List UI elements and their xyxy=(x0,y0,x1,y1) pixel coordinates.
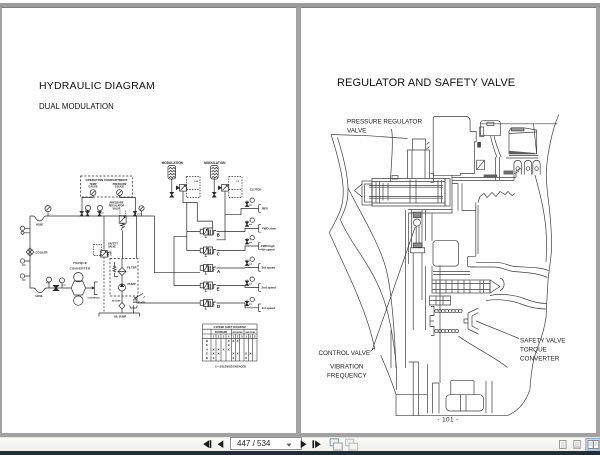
svg-text:C: C xyxy=(217,251,221,256)
svg-text:2: 2 xyxy=(250,335,252,339)
svg-text:X: X xyxy=(245,356,247,360)
svg-text:X: X xyxy=(249,352,251,356)
svg-text:1st speed: 1st speed xyxy=(262,306,276,310)
svg-text:3: 3 xyxy=(254,335,256,339)
svg-text:X: X xyxy=(228,347,230,351)
svg-text:D: D xyxy=(217,304,220,309)
svg-text:HOSE: HOSE xyxy=(36,224,43,227)
svg-text:TORQUE: TORQUE xyxy=(520,347,547,354)
svg-text:2: 2 xyxy=(218,335,220,339)
svg-text:B: B xyxy=(217,232,220,237)
svg-text:CONVERTER: CONVERTER xyxy=(520,356,560,363)
svg-text:FREQUENCY: FREQUENCY xyxy=(327,372,367,379)
svg-text:X: X xyxy=(232,356,234,360)
svg-text:GAUGE: GAUGE xyxy=(115,186,125,189)
svg-text:VALVE: VALVE xyxy=(347,128,366,135)
svg-text:psi: psi xyxy=(138,214,142,216)
svg-text:SAFETY VALVE: SAFETY VALVE xyxy=(520,338,566,345)
svg-text:4th speed: 4th speed xyxy=(261,247,275,251)
svg-text:X: X xyxy=(212,356,214,360)
svg-text:psi: psi xyxy=(249,283,253,285)
svg-text:1: 1 xyxy=(245,335,247,339)
svg-text:X: X xyxy=(237,339,239,343)
svg-text:HOSE: HOSE xyxy=(35,295,42,298)
svg-text:X: X xyxy=(237,352,239,356)
svg-text:L5: L5 xyxy=(237,181,240,183)
svg-text:BREATHER: BREATHER xyxy=(133,301,145,304)
svg-text:TORQUE: TORQUE xyxy=(73,261,87,265)
svg-text:OIL SUMP: OIL SUMP xyxy=(114,316,126,319)
svg-text:CLUTCH: CLUTCH xyxy=(250,188,262,192)
svg-text:3: 3 xyxy=(223,335,225,339)
svg-text:MODULATION: MODULATION xyxy=(204,161,226,165)
svg-text:VALVE: VALVE xyxy=(108,245,116,248)
svg-text:VIBRATION: VIBRATION xyxy=(330,363,364,370)
svg-text:X: X xyxy=(232,339,234,343)
svg-text:X: X xyxy=(217,352,219,356)
svg-text:TW: TW xyxy=(46,283,50,285)
svg-text:FILTER: FILTER xyxy=(127,265,137,269)
svg-text:PUMP: PUMP xyxy=(128,282,136,286)
svg-text:3rd speed: 3rd speed xyxy=(262,266,276,270)
svg-text:2nd speed: 2nd speed xyxy=(262,286,277,290)
svg-text:psi: psi xyxy=(249,263,253,265)
svg-text:X = SOLENOID ENGAGED: X = SOLENOID ENGAGED xyxy=(215,365,246,368)
svg-text:PRESSURE REGULATOR: PRESSURE REGULATOR xyxy=(347,119,422,126)
svg-text:REV: REV xyxy=(262,207,268,211)
svg-text:psi: psi xyxy=(249,204,253,206)
svg-text:MODULATION: MODULATION xyxy=(162,161,184,165)
svg-text:psi: psi xyxy=(249,224,253,226)
svg-text:X: X xyxy=(222,347,224,351)
svg-text:CONVERTER: CONVERTER xyxy=(70,267,91,271)
svg-text:GAUGE: GAUGE xyxy=(88,186,98,189)
svg-text:psi: psi xyxy=(101,213,105,215)
svg-text:psi: psi xyxy=(249,242,253,244)
svg-text:CONVERSION: CONVERSION xyxy=(88,297,101,299)
svg-text:FWD slow: FWD slow xyxy=(262,227,277,231)
svg-text:psi: psi xyxy=(63,285,67,287)
svg-text:FORWARD: FORWARD xyxy=(215,331,228,334)
svg-text:COOLER: COOLER xyxy=(36,250,48,254)
svg-text:A: A xyxy=(217,269,221,274)
svg-text:CONTROL VALVE: CONTROL VALVE xyxy=(319,350,371,357)
svg-text:E: E xyxy=(217,286,220,291)
svg-text:NO SUMP: NO SUMP xyxy=(112,301,121,303)
svg-text:L64: L64 xyxy=(195,180,199,183)
svg-text:3: 3 xyxy=(241,335,243,339)
svg-text:4 SPEED SHIFT DIAGRAM: 4 SPEED SHIFT DIAGRAM xyxy=(213,325,245,329)
svg-text:psi: psi xyxy=(249,304,253,306)
svg-text:D: D xyxy=(206,356,209,360)
svg-text:VALVE: VALVE xyxy=(113,208,121,211)
svg-text:1: 1 xyxy=(213,335,215,339)
svg-text:OPERATION COMPARTMENT: OPERATION COMPARTMENT xyxy=(86,178,128,182)
svg-text:- 101 -: - 101 - xyxy=(437,417,458,424)
